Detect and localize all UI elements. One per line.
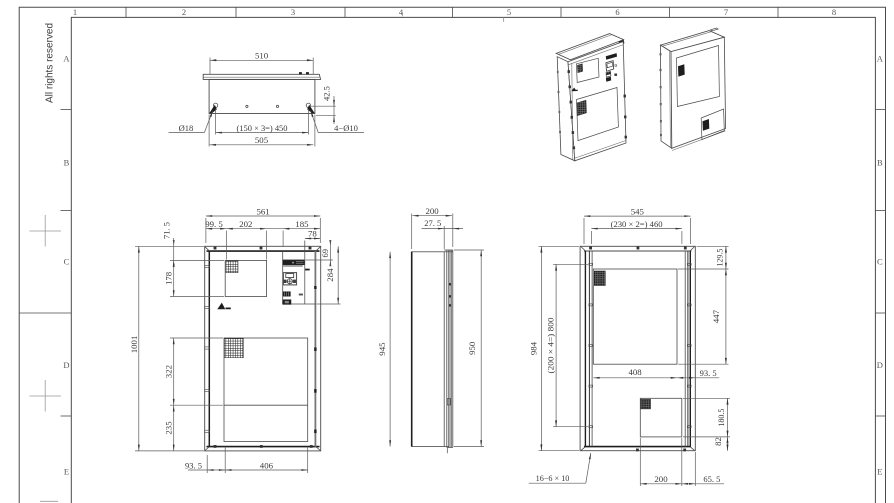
svg-text:984: 984: [529, 341, 539, 355]
svg-text:D: D: [63, 360, 69, 370]
svg-text:202: 202: [239, 219, 252, 229]
svg-text:(150 × 3=) 450: (150 × 3=) 450: [237, 124, 288, 133]
svg-text:200: 200: [425, 206, 439, 216]
svg-text:82: 82: [713, 437, 723, 446]
svg-text:200: 200: [654, 474, 668, 484]
svg-text:406: 406: [260, 460, 274, 470]
svg-text:69: 69: [320, 249, 330, 258]
svg-text:A: A: [63, 54, 70, 64]
svg-text:93. 5: 93. 5: [185, 460, 202, 470]
svg-text:408: 408: [628, 367, 642, 377]
svg-text:5: 5: [507, 7, 511, 17]
svg-text:A: A: [877, 54, 884, 64]
svg-text:185: 185: [295, 219, 309, 229]
svg-text:65. 5: 65. 5: [703, 474, 720, 484]
svg-text:E: E: [64, 467, 69, 477]
svg-text:284: 284: [325, 268, 335, 282]
svg-text:505: 505: [255, 135, 269, 145]
svg-text:561: 561: [256, 206, 269, 216]
svg-text:99. 5: 99. 5: [205, 219, 223, 229]
svg-text:16−6 × 10: 16−6 × 10: [536, 474, 570, 483]
svg-text:(230 × 2=) 460: (230 × 2=) 460: [611, 220, 663, 229]
svg-text:4−Ø10: 4−Ø10: [334, 123, 358, 133]
svg-text:178: 178: [164, 271, 174, 285]
svg-text:180.5: 180.5: [717, 409, 726, 427]
svg-text:945: 945: [377, 342, 387, 356]
svg-text:(200 × 4=) 800: (200 × 4=) 800: [546, 318, 555, 374]
svg-text:510: 510: [255, 51, 269, 61]
svg-text:235: 235: [164, 421, 174, 435]
svg-text:1001: 1001: [129, 336, 139, 354]
svg-text:129.5: 129.5: [715, 249, 724, 267]
svg-text:71. 5: 71. 5: [162, 222, 172, 239]
svg-text:42.5: 42.5: [322, 86, 332, 101]
svg-text:D: D: [877, 360, 883, 370]
svg-text:C: C: [64, 257, 70, 267]
svg-text:B: B: [64, 158, 70, 168]
svg-text:6: 6: [615, 7, 619, 17]
svg-text:C: C: [877, 257, 883, 267]
svg-text:E: E: [877, 467, 882, 477]
svg-text:1: 1: [73, 7, 77, 17]
svg-text:8: 8: [832, 7, 836, 17]
svg-text:93. 5: 93. 5: [700, 368, 717, 378]
svg-text:447: 447: [711, 309, 721, 323]
svg-text:78: 78: [308, 229, 317, 239]
svg-text:322: 322: [164, 365, 174, 378]
svg-text:7: 7: [724, 7, 728, 17]
svg-text:545: 545: [631, 207, 645, 217]
svg-text:All rights reserved: All rights reserved: [45, 23, 56, 103]
svg-text:27. 5: 27. 5: [424, 218, 441, 228]
svg-text:Ø18: Ø18: [179, 123, 194, 133]
svg-text:950: 950: [467, 341, 477, 355]
svg-text:3: 3: [291, 7, 295, 17]
svg-text:B: B: [877, 158, 883, 168]
svg-text:2: 2: [182, 7, 186, 17]
